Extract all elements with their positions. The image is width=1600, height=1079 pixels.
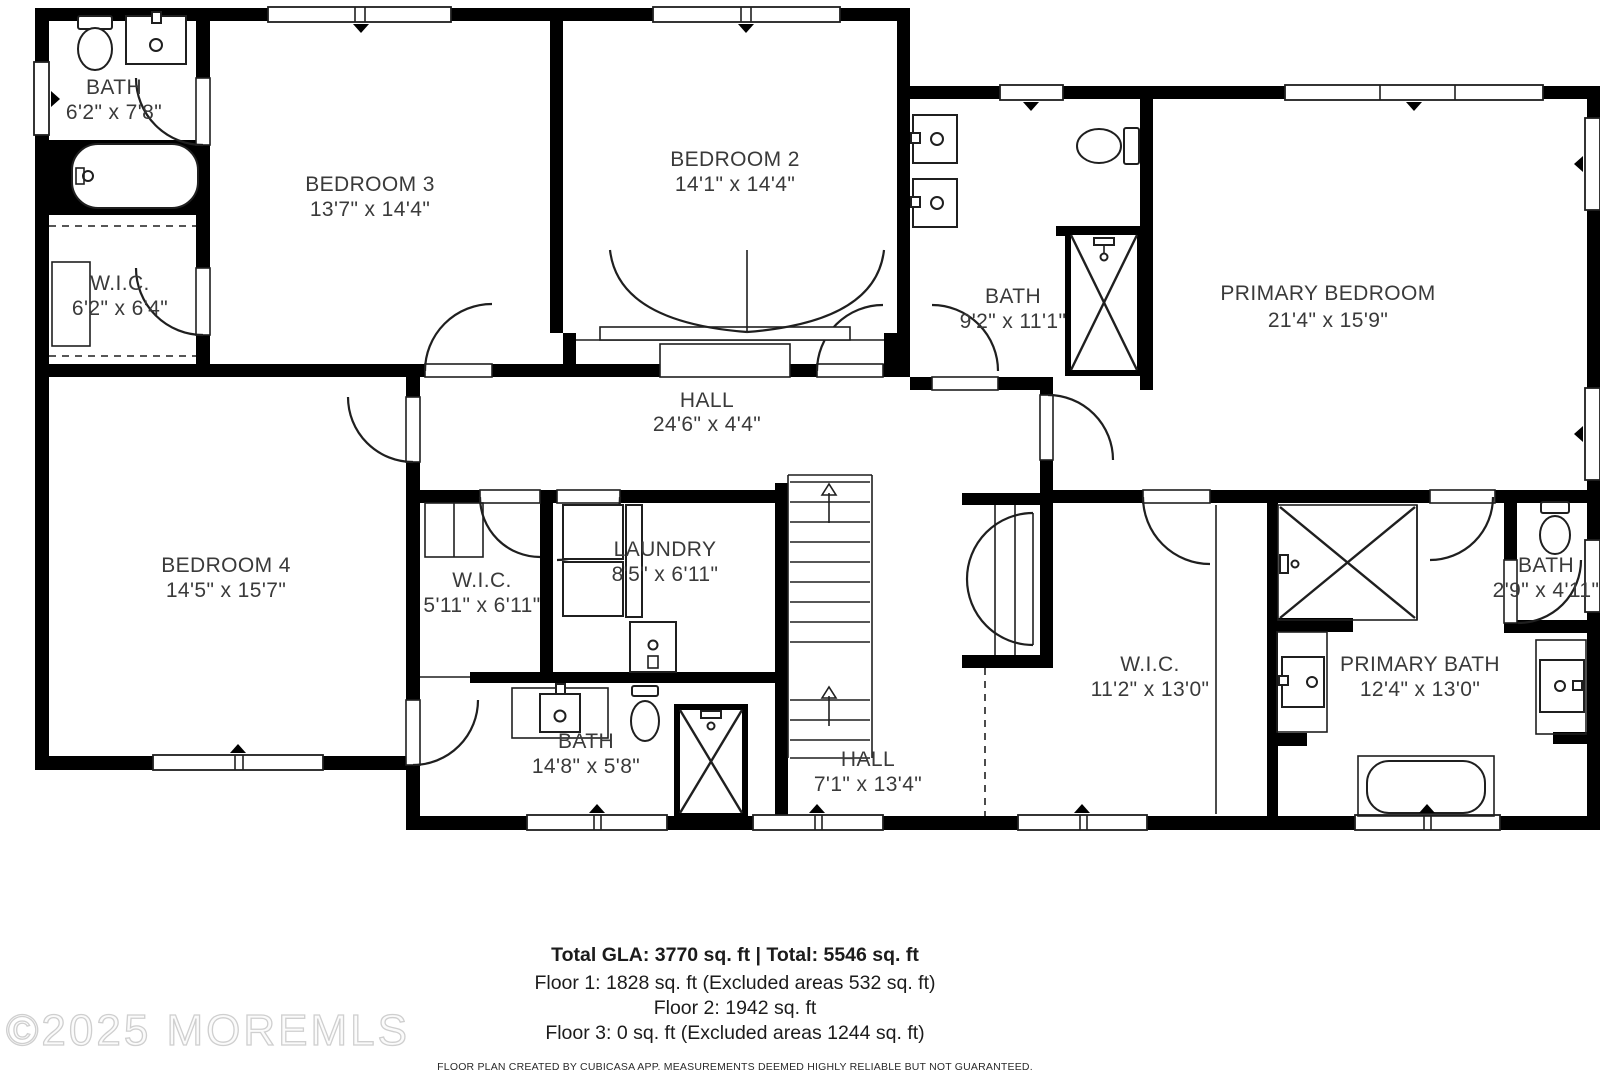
door-arc [1143,490,1210,564]
room-dims-hall-upper: 24'6" x 4'4" [653,413,761,436]
sink-icon [630,622,676,672]
window [153,755,323,770]
floor-plan: BATH 6'2" x 7'8" W.I.C. 6'2" x 6'4" BEDR… [0,0,1600,1079]
washer-dryer-icon [563,505,642,617]
room-label-bath-center: BATH [985,285,1041,308]
window [1585,388,1600,480]
room-dims-primary-bedroom: 21'4" x 15'9" [1268,309,1388,332]
windows [34,7,1600,830]
room-dims-bath-upper-left: 6'2" x 7'8" [66,101,162,124]
room-dims-wic-small: 5'11" x 6'11" [423,594,540,617]
room-dims-wic-upper-left: 6'2" x 6'4" [72,297,168,320]
window [34,62,49,135]
room-dims-bedroom-3: 13'7" x 14'4" [310,198,430,221]
room-dims-hall-lower: 7'1" x 13'4" [814,773,922,796]
room-label-bedroom-4: BEDROOM 4 [161,554,291,577]
fixtures [49,12,1586,816]
door-arc [1040,395,1113,460]
window [1018,815,1147,830]
room-label-bedroom-3: BEDROOM 3 [305,173,435,196]
room-label-hall-lower: HALL [841,748,895,771]
footer-summary: Total GLA: 3770 sq. ft | Total: 5546 sq.… [437,944,1033,1073]
window [1585,118,1600,210]
room-labels: BATH 6'2" x 7'8" W.I.C. 6'2" x 6'4" BEDR… [66,76,1599,796]
room-label-bath-lower: BATH [558,730,614,753]
room-label-wic-small: W.I.C. [452,569,512,592]
window [1355,815,1500,830]
floor2-line: Floor 2: 1942 sq. ft [437,997,1033,1020]
room-dims-bedroom-4: 14'5" x 15'7" [166,579,286,602]
sink-icon [1536,640,1586,734]
door-arc [1430,490,1495,560]
shower-icon [1068,232,1140,373]
window [527,815,667,830]
toilet-icon [631,686,659,741]
door-arc [348,397,420,462]
room-dims-bath-lower: 14'8" x 5'8" [532,755,640,778]
window [268,7,451,22]
walls [35,8,1600,830]
room-label-primary-bedroom: PRIMARY BEDROOM [1220,282,1435,305]
window [1285,85,1543,100]
room-label-laundry: LAUNDRY [614,538,717,561]
door-arc [406,700,478,765]
watermark: ©2025 MOREMLS [6,1006,410,1056]
shower-icon [677,707,745,816]
shower-icon [1278,505,1417,620]
room-dims-bedroom-2: 14'1" x 14'4" [675,173,795,196]
door-arc [480,490,540,557]
bathtub-icon [72,144,198,208]
room-dims-laundry: 8'5" x 6'11" [612,563,719,586]
stairs-icon [788,475,872,758]
room-label-bath-upper-left: BATH [86,76,142,99]
disclaimer-text: FLOOR PLAN CREATED BY CUBICASA APP. MEAS… [437,1061,1033,1073]
door-arc [425,304,492,377]
room-label-primary-bath: PRIMARY BATH [1340,653,1500,676]
sink-icon [126,12,186,64]
room-dims-bath-small: 2'9" x 4'11" [1493,579,1600,602]
sink-icon [1277,632,1327,732]
floor3-line: Floor 3: 0 sq. ft (Excluded areas 1244 s… [437,1022,1033,1045]
room-label-hall-upper: HALL [680,389,734,412]
window [1000,85,1063,100]
closet-double-doors [576,250,884,377]
sink-icon [911,115,957,163]
room-dims-primary-bath: 12'4" x 13'0" [1360,678,1480,701]
toilet-icon [1540,502,1570,554]
window [653,7,840,22]
room-label-bedroom-2: BEDROOM 2 [670,148,800,171]
room-dims-wic-primary: 11'2" x 13'0" [1091,678,1210,701]
toilet-icon [1077,128,1139,164]
window [753,815,883,830]
direction-markers [51,24,1583,813]
room-label-wic-upper-left: W.I.C. [90,272,150,295]
room-dims-bath-center: 9'2" x 11'1" [960,310,1067,333]
total-gla-line: Total GLA: 3770 sq. ft | Total: 5546 sq.… [437,944,1033,967]
floor1-line: Floor 1: 1828 sq. ft (Excluded areas 532… [437,972,1033,995]
room-label-wic-primary: W.I.C. [1120,653,1180,676]
room-label-bath-small: BATH [1518,554,1574,577]
toilet-icon [78,16,112,70]
sink-icon [911,179,957,227]
floor-plan-page: BATH 6'2" x 7'8" W.I.C. 6'2" x 6'4" BEDR… [0,0,1600,1079]
